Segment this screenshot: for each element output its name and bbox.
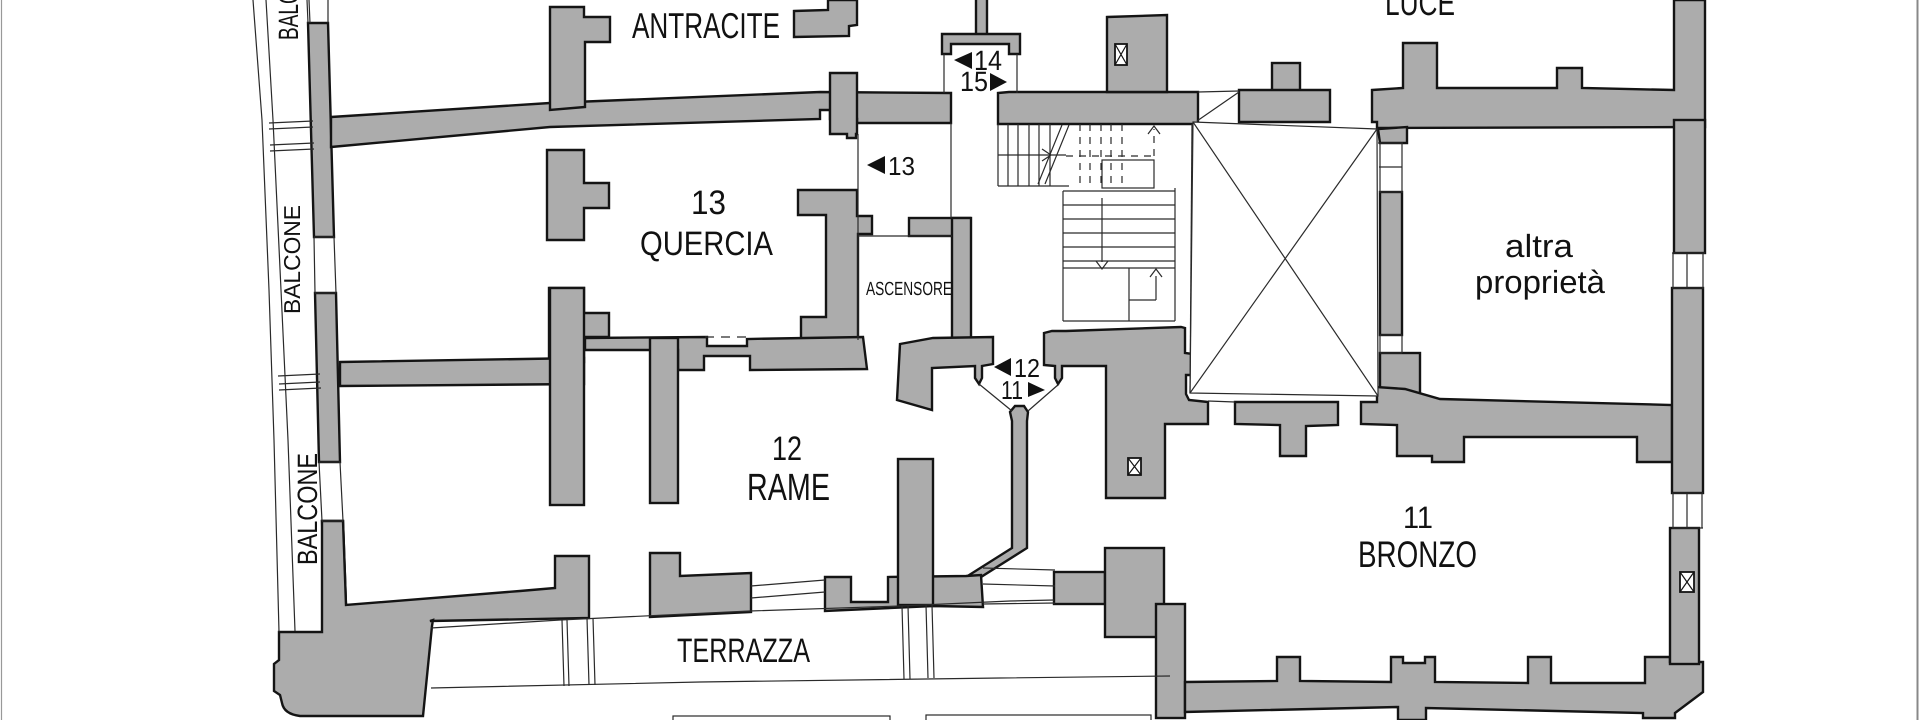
svg-text:13: 13	[888, 151, 915, 181]
svg-text:TERRAZZA: TERRAZZA	[677, 632, 810, 670]
svg-text:QUERCIA: QUERCIA	[640, 225, 773, 263]
svg-text:ANTRACITE: ANTRACITE	[632, 5, 780, 46]
svg-text:BALCONE: BALCONE	[292, 453, 323, 565]
svg-text:RAME: RAME	[747, 467, 830, 509]
svg-text:proprietà: proprietà	[1475, 264, 1605, 300]
svg-text:BALCONE: BALCONE	[273, 0, 304, 40]
svg-text:BRONZO: BRONZO	[1358, 534, 1477, 575]
svg-text:11: 11	[1403, 500, 1433, 535]
svg-text:11: 11	[1001, 375, 1023, 405]
svg-text:15: 15	[960, 66, 988, 97]
svg-text:13: 13	[691, 184, 726, 222]
svg-text:LUCE: LUCE	[1385, 0, 1455, 23]
svg-text:altra: altra	[1505, 228, 1573, 264]
svg-text:ASCENSORE: ASCENSORE	[866, 279, 952, 300]
svg-text:12: 12	[772, 430, 802, 468]
svg-text:BALCONE: BALCONE	[279, 205, 305, 314]
